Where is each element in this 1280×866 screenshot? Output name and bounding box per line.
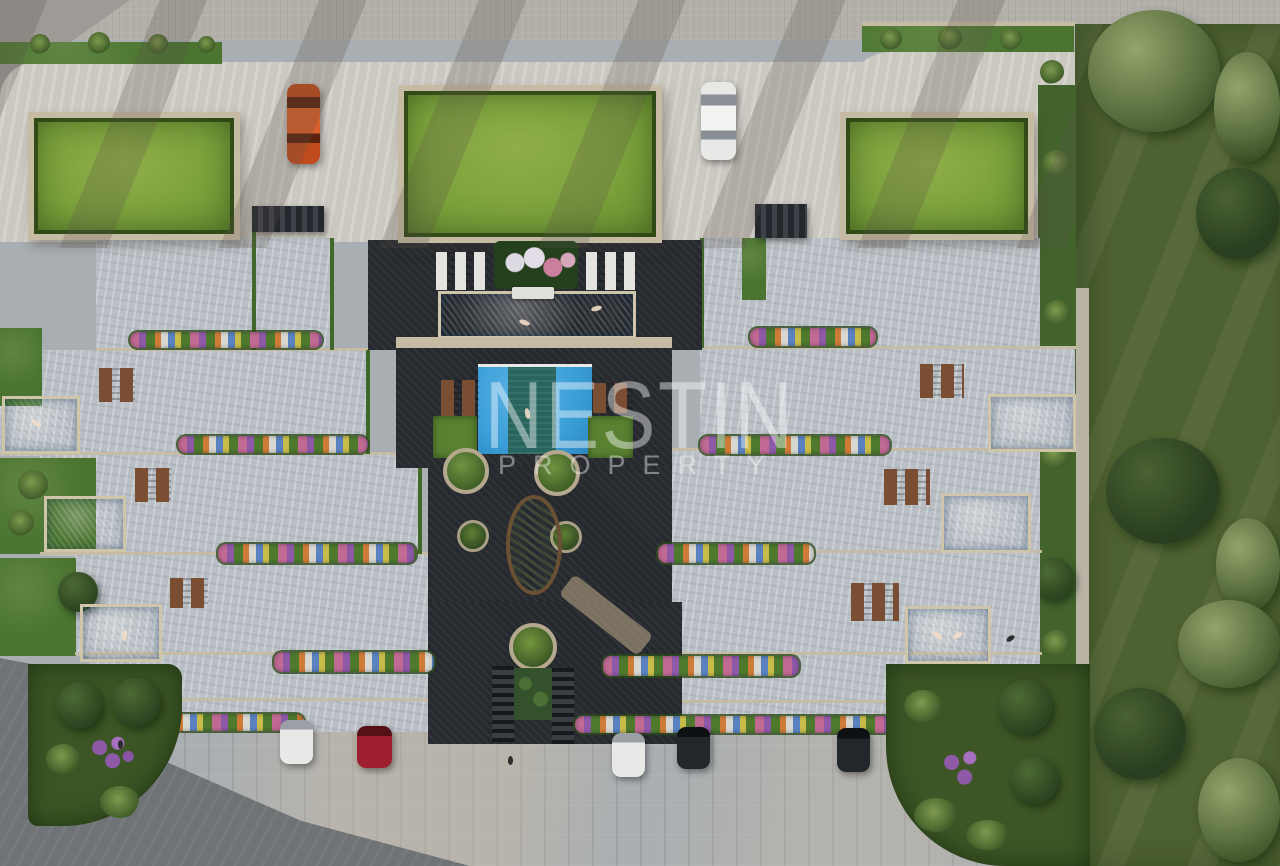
- sun-loungers-white: [436, 252, 486, 290]
- car-red-bottom: [357, 726, 392, 768]
- flower-bed: [274, 652, 434, 672]
- palm-tree-icon: [904, 690, 942, 722]
- palm-tree-icon: [1042, 630, 1070, 658]
- car-dark-bottom-1: [677, 727, 710, 769]
- green-roof-1: [28, 112, 240, 240]
- entry-planter: [509, 623, 557, 671]
- tree: [1198, 758, 1280, 862]
- swimmer: [932, 630, 944, 641]
- stairs-west: [492, 666, 514, 742]
- sun-loungers-brown: [920, 364, 964, 398]
- pergola-east: [755, 204, 807, 238]
- central-shrub-planter: [506, 495, 562, 595]
- swimmer: [591, 305, 603, 313]
- sun-loungers-brown: [593, 383, 633, 413]
- green-roof-3: [840, 112, 1034, 240]
- palm-tree-icon: [1044, 300, 1070, 326]
- sun-loungers-brown: [170, 578, 208, 608]
- private-pool-w3: [80, 604, 162, 662]
- palm-tree-icon: [1040, 60, 1064, 84]
- palm-tree-icon: [966, 820, 1010, 850]
- private-pool-e3: [905, 606, 991, 664]
- tree: [1216, 518, 1280, 612]
- purple-flower-cluster: [84, 730, 136, 774]
- round-planter-grass: [534, 450, 580, 496]
- car-dark-bottom-2: [837, 728, 870, 772]
- purple-flower-cluster: [936, 744, 988, 790]
- private-pool-w1: [2, 396, 80, 454]
- car-white-bottom-2: [612, 733, 645, 777]
- tree: [1094, 688, 1186, 780]
- palm-tree-icon: [1000, 28, 1022, 50]
- flower-bed: [700, 436, 890, 454]
- round-bush: [56, 682, 102, 728]
- palm-tree-icon: [8, 510, 34, 536]
- round-bush: [998, 680, 1052, 734]
- swimmer: [122, 630, 128, 641]
- round-bush: [1010, 756, 1058, 804]
- palm-tree-icon: [914, 798, 958, 832]
- sun-loungers-brown: [99, 368, 135, 402]
- square-planter: [588, 416, 633, 458]
- kids-pool: [478, 364, 592, 454]
- site-plan-render: NESTIN PROPERTY: [0, 0, 1280, 866]
- palm-tree-icon: [88, 32, 110, 54]
- palm-tree-icon: [198, 36, 215, 53]
- stone-bench-bar: [396, 337, 672, 348]
- sun-loungers-brown: [884, 469, 930, 505]
- pool-bridge: [512, 287, 554, 299]
- flower-bed: [178, 436, 368, 453]
- private-pool-w2: [44, 496, 126, 552]
- palm-tree-icon: [938, 26, 962, 50]
- hedge-pocket: [742, 238, 766, 300]
- sun-loungers-white: [586, 252, 636, 290]
- round-planter-grass: [443, 448, 489, 494]
- pedestrian: [508, 756, 513, 765]
- flower-bed: [603, 656, 799, 676]
- car-white-bottom-1: [280, 720, 313, 764]
- entry-hedge: [514, 668, 552, 720]
- round-bush: [112, 678, 160, 726]
- terrace-wall: [700, 346, 1077, 349]
- palm-tree-icon: [100, 786, 140, 818]
- car-white-top: [701, 82, 736, 160]
- flower-bed: [218, 544, 416, 563]
- hedge-line: [330, 238, 334, 350]
- garden-pocket-west: [0, 328, 42, 406]
- terrace-wall: [96, 348, 368, 351]
- stairs-east: [552, 668, 574, 744]
- tree: [1196, 168, 1280, 260]
- sun-loungers-brown: [135, 468, 171, 502]
- hedge-line: [418, 454, 422, 554]
- round-planter-palm: [457, 520, 489, 552]
- car-orange-top: [287, 84, 320, 164]
- palm-tree-icon: [880, 28, 902, 50]
- flower-bed: [658, 544, 814, 563]
- palm-tree-icon: [1042, 150, 1070, 178]
- kids-pool-lane: [508, 367, 556, 454]
- swimmer: [951, 631, 963, 641]
- swimmer: [30, 419, 42, 429]
- pergola-west: [252, 206, 324, 232]
- tree: [1088, 10, 1220, 132]
- pedestrian: [118, 740, 123, 749]
- tree: [1106, 438, 1220, 544]
- sun-loungers-brown: [851, 583, 899, 621]
- private-pool-e1: [988, 394, 1076, 452]
- sun-loungers-brown: [441, 380, 479, 418]
- tree: [1214, 52, 1280, 162]
- palm-tree-icon: [148, 34, 168, 54]
- hydrangea-planter: [494, 241, 578, 289]
- flower-bed: [750, 328, 876, 346]
- tree: [1178, 600, 1280, 688]
- boundary-wall-top: [862, 22, 1076, 26]
- palm-tree-icon: [30, 34, 50, 54]
- flower-bed: [130, 332, 322, 348]
- green-roof-2: [398, 85, 662, 243]
- palm-tree-icon: [46, 744, 80, 774]
- hedge-line: [366, 350, 370, 454]
- swimmer: [518, 318, 530, 326]
- private-pool-e2: [941, 493, 1031, 553]
